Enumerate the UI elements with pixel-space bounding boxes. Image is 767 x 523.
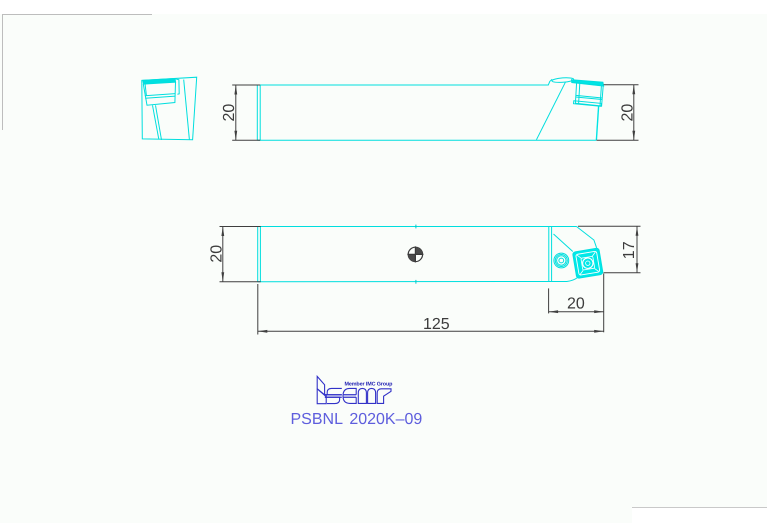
svg-text:20: 20 (221, 104, 238, 122)
svg-text:17: 17 (621, 241, 638, 259)
svg-text:20: 20 (209, 245, 226, 263)
svg-text:125: 125 (423, 316, 450, 333)
svg-text:Member IMC Group: Member IMC Group (345, 382, 394, 388)
svg-text:20: 20 (620, 104, 637, 122)
svg-text:PSBNL 2020K–09: PSBNL 2020K–09 (291, 411, 423, 428)
svg-text:20: 20 (567, 296, 585, 313)
